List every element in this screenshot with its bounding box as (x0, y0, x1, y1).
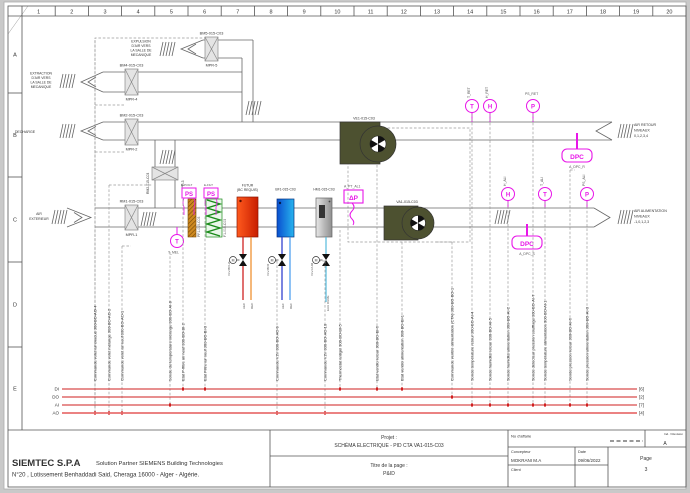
svg-text:MECANIQUE: MECANIQUE (131, 53, 152, 57)
io-point-label: Sonde pression retour 300-BO-AI-6 (568, 317, 573, 381)
expulsion-label: EXPULSION (131, 40, 151, 44)
page-number: 3 (645, 467, 648, 473)
svg-text:ΔP: ΔP (349, 195, 359, 202)
svg-text:BM4-015-C03: BM4-015-C03 (120, 64, 144, 68)
svg-text:EXTERIEUR: EXTERIEUR (29, 217, 49, 221)
io-point-label: Sonde température alimentation 300-BO-AI… (543, 300, 548, 381)
air-alimentation-label: AIR ALIMENTATION (634, 209, 667, 213)
project-label: Projet : (381, 435, 397, 441)
prefilter-switch-label: E-P.FILT (181, 183, 193, 187)
filter-switch-label: E-FILT (204, 183, 213, 187)
ps-ret-tag: PS_RET (525, 92, 538, 96)
bus-label: DI (55, 387, 60, 392)
ruler-row-label: E (13, 387, 17, 393)
hot-valve-tag: VLV-BCHA (227, 261, 231, 276)
io-point-label: Sonde température retour 300-BO-AI-4 (470, 311, 475, 381)
ruler-column-label: 12 (401, 10, 407, 16)
ruler-row-label: D (13, 303, 17, 309)
page-title: P&ID (383, 471, 395, 477)
project-name: SCHÉMA ELECTRIQUE - PID CTA VA1-015-C03 (334, 442, 444, 449)
cold-valve-tag: VLV-BFR (266, 263, 270, 276)
svg-text:-1,0,1,2,3: -1,0,1,2,3 (634, 220, 649, 224)
partner-line: Solution Partner SIEMENS Building Techno… (96, 461, 223, 467)
company-name: SIEMTEC S.P.A (12, 458, 81, 469)
io-point-label: Sonde humidité alimentation 300-BO-AI-2 (506, 306, 511, 381)
h-ret-tag: H_RET (485, 87, 489, 98)
svg-text:DPC: DPC (520, 241, 534, 248)
ruler-column-label: 10 (334, 10, 340, 16)
svg-text:D'AIR VERS: D'AIR VERS (32, 76, 52, 80)
humidifier-valve-tag: VLV-HUM (310, 262, 314, 276)
ruler-column-label: 7 (236, 10, 239, 16)
io-point-label: Commande V2V 300-BO-AO-9 (275, 325, 280, 381)
bus-end-label: [7] (639, 403, 644, 408)
io-point-label: Commande volet mélange 300-BO-AO-2 (107, 308, 112, 381)
dpc-r-tag: A_DPC_R (569, 165, 585, 169)
svg-text:LA SALLE DE: LA SALLE DE (30, 81, 52, 85)
svg-text:BM5-015-C03: BM5-015-C03 (200, 32, 224, 36)
pipe-label-aef: AEF (281, 303, 285, 309)
io-point-label: Sonde de température mélange 300-BO-AI-8 (168, 300, 173, 381)
ruler-column-label: 5 (170, 10, 173, 16)
svg-text:MECANIQUE: MECANIQUE (31, 85, 52, 89)
ruler-column-label: 3 (103, 10, 106, 16)
svg-text:P: P (585, 193, 589, 199)
svg-text:(BC REQUIS): (BC REQUIS) (237, 188, 258, 192)
t-ret-tag: T_RET (467, 87, 471, 98)
air-exterieur-label: AIR (36, 212, 42, 216)
io-point-label: Etat ventilo retour 300-BO-BI-6 (375, 325, 380, 381)
io-point-label: Commande ventilo alimentation (CTA) 300-… (450, 287, 455, 381)
svg-text:PS: PS (185, 192, 193, 198)
svg-text:M: M (315, 259, 318, 263)
io-point-label: Thermostat antigel 300-BO-BI-5 (338, 324, 343, 381)
io-point-label: Etat ventilo alimentation 300-BO-BI-1 (400, 314, 405, 381)
svg-text:M: M (232, 259, 235, 263)
svg-text:DPC: DPC (570, 154, 584, 161)
svg-text:P: P (531, 105, 535, 111)
h-ali-tag: H_ALI (503, 177, 507, 186)
bus-label: AO (52, 411, 59, 416)
io-point-label: Commande volet air évacué 300-BO-AO-4 (93, 305, 98, 381)
extract-fan-tag: VE1-015-C03 (353, 117, 375, 121)
affaire-label: No d'affaire (511, 434, 532, 439)
company-address: N°20 , Lotissement Benhaddadi Said, Cher… (12, 473, 200, 479)
designer-label: Concepteur (511, 450, 531, 454)
svg-text:NIVEAUX: NIVEAUX (634, 129, 650, 133)
svg-text:NIVEAUX: NIVEAUX (634, 215, 650, 219)
svg-text:MPR-1: MPR-1 (126, 233, 138, 237)
svg-text:RM1-015-C03: RM1-015-C03 (120, 200, 144, 204)
sheet-frame: 1234567891011121314151617181920 ABCDE (0, 0, 690, 493)
bus-end-label: [4] (639, 411, 644, 416)
svg-text:T: T (543, 193, 547, 199)
svg-text:LA SALLE DE: LA SALLE DE (130, 49, 152, 53)
humidifier-tag: HM1-015-C03 (313, 188, 334, 192)
ruler-column-label: 15 (500, 10, 506, 16)
io-point-label: Commande V2V 300-BO-AO-10 (323, 323, 328, 381)
extraction-label: EXTRACTION (30, 72, 52, 76)
svg-text:MPR-2: MPR-2 (126, 148, 138, 152)
designer-value: MOKRANI M.A (511, 458, 541, 463)
io-point-label: Etat Filtre air neuf 300-BO-BI-3 (203, 325, 208, 381)
ruler-column-label: 4 (137, 10, 140, 16)
ruler-column-label: 13 (434, 10, 440, 16)
svg-text:0,1,2,3,4: 0,1,2,3,4 (634, 134, 648, 138)
svg-text:BM2-015-C03: BM2-015-C03 (120, 114, 144, 118)
ruler-column-label: 18 (600, 10, 606, 16)
svg-text:M: M (271, 259, 274, 263)
prefilter-tag: PF1-015-C03 (197, 217, 201, 237)
revision-label: Ind. / Revision (664, 432, 683, 436)
cold-coil (277, 199, 294, 237)
pid-drawing: 1234567891011121314151617181920 ABCDE (0, 0, 690, 493)
hot-coil-label: FUTUR (242, 184, 254, 188)
svg-text:D'AIR VERS: D'AIR VERS (132, 44, 152, 48)
svg-text:MPR-5: MPR-5 (206, 64, 218, 68)
page-label: Page (640, 456, 652, 462)
cold-coil-tag: BF1-015-C03 (275, 188, 295, 192)
svg-text:MPR-4: MPR-4 (126, 98, 138, 102)
bus-end-label: [6] (639, 387, 644, 392)
ps-ali-tag: PS_ALI (582, 174, 586, 186)
date-value: 09/06/2022 (578, 458, 601, 463)
svg-text:H: H (506, 193, 510, 199)
svg-text:H: H (488, 105, 492, 111)
io-point-label: Sonde pression alimentation 300-BO-AI-3 (585, 306, 590, 381)
ruler-column-label: 9 (303, 10, 306, 16)
hot-coil-future (237, 197, 258, 237)
ruler-column-label: 20 (666, 10, 672, 16)
decharge-label: DECHARGE (15, 130, 36, 134)
svg-text:RM2-015-C03: RM2-015-C03 (146, 173, 150, 194)
io-point-label: Commande volet air neuf 300-BO-AO-1 (120, 310, 125, 381)
ruler-column-label: 6 (203, 10, 206, 16)
ruler-column-label: 11 (368, 10, 374, 16)
client-label: Client (511, 468, 522, 472)
date-label: Date (578, 450, 586, 454)
ruler-column-label: 14 (467, 10, 473, 16)
filter-tag: F1-015-C03 (223, 219, 227, 237)
sheet (4, 2, 686, 489)
ruler-column-label: 17 (567, 10, 573, 16)
io-point-label: Sonde humidité retour 300-BO-AI-5 (488, 317, 493, 381)
ruler-column-label: 2 (70, 10, 73, 16)
pipe-label-aec: AEC (242, 302, 246, 309)
pipe-label-rec: REC (250, 302, 254, 309)
pipe-label-ref: REF (289, 303, 293, 309)
supply-fan-tag: VA1-015-C03 (396, 200, 418, 204)
ruler-row-label: C (13, 218, 17, 224)
t-ali-tag: T_ALI (540, 177, 544, 186)
dp-tag: A_PT_AL1 (344, 185, 361, 189)
ruler-column-label: 16 (534, 10, 540, 16)
ruler-column-label: 19 (633, 10, 639, 16)
bus-label: DO (52, 395, 59, 400)
io-point-label: Etat P-filtre air neuf 300-BO-BI-2 (181, 322, 186, 381)
bus-end-label: [2] (639, 395, 644, 400)
pipe-label-eau: EAU DURE (326, 295, 330, 311)
svg-text:T: T (470, 105, 474, 111)
air-retour-label: AIR RETOUR (634, 123, 657, 127)
page-title-label: Titre de la page : (370, 463, 407, 469)
svg-text:PS: PS (207, 192, 215, 198)
ruler-column-label: 8 (269, 10, 272, 16)
ruler-column-label: 1 (37, 10, 40, 16)
ruler-row-label: A (13, 53, 17, 59)
bus-label: AI (55, 403, 59, 408)
io-point-label: Sonde détecteur pression soufflage 300-B… (531, 294, 536, 381)
svg-text:T: T (175, 240, 179, 246)
